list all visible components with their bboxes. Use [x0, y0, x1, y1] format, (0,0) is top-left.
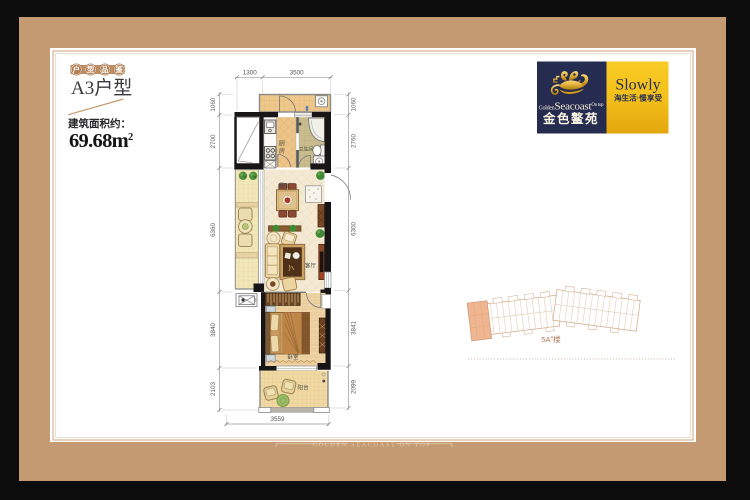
svg-text:6300: 6300	[351, 222, 358, 237]
svg-text:3500: 3500	[290, 70, 305, 77]
svg-text:A3户型: A3户型	[71, 77, 132, 99]
svg-text:建筑面积约：: 建筑面积约：	[67, 117, 131, 130]
svg-text:品: 品	[101, 65, 108, 74]
svg-text:型: 型	[87, 65, 94, 74]
svg-text:阳台: 阳台	[297, 384, 309, 392]
svg-text:1060: 1060	[210, 97, 217, 112]
svg-text:1300: 1300	[243, 70, 258, 77]
svg-text:厨: 厨	[279, 141, 285, 148]
svg-text:2099: 2099	[351, 380, 358, 395]
svg-text:69.68m2: 69.68m2	[69, 130, 133, 152]
svg-text:6360: 6360	[210, 223, 217, 238]
svg-text:餐厅: 餐厅	[278, 182, 290, 190]
svg-text:GOLDEN SEACOAST ON TOP: GOLDEN SEACOAST ON TOP	[313, 442, 432, 449]
svg-text:Slowly: Slowly	[615, 77, 660, 94]
svg-text:海生活·慢享受: 海生活·慢享受	[614, 93, 662, 103]
svg-text:鉴: 鉴	[115, 65, 124, 74]
svg-text:3840: 3840	[210, 323, 217, 338]
svg-text:1060: 1060	[351, 97, 358, 112]
svg-text:3841: 3841	[351, 321, 358, 336]
svg-text:客厅: 客厅	[305, 262, 317, 270]
svg-text:户: 户	[73, 65, 80, 74]
svg-text:2700: 2700	[210, 134, 217, 149]
svg-text:2760: 2760	[351, 134, 358, 149]
svg-text:卧室: 卧室	[287, 353, 299, 361]
svg-text:金色鳌苑: 金色鳌苑	[542, 111, 599, 126]
svg-text:卫生间: 卫生间	[299, 146, 314, 153]
svg-text:2103: 2103	[210, 382, 217, 397]
svg-text:3559: 3559	[270, 416, 285, 423]
svg-text:房: 房	[279, 147, 285, 155]
